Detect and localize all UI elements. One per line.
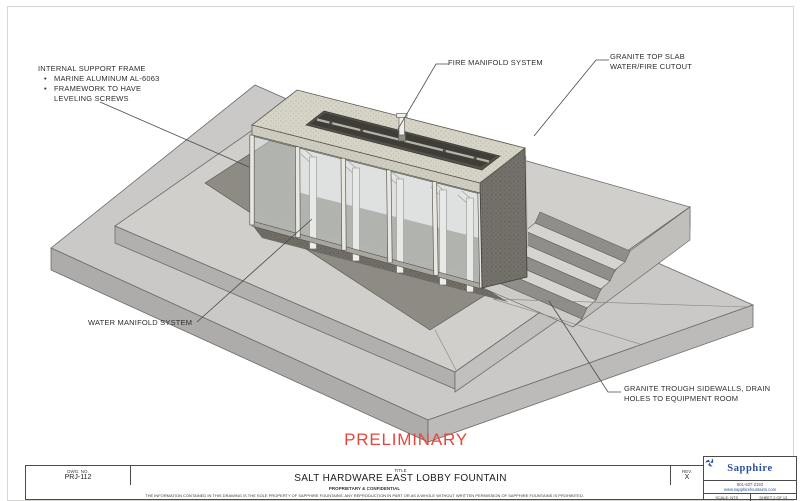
callout-internal-support-frame: INTERNAL SUPPORT FRAME • MARINE ALUMINUM… [38, 64, 216, 104]
drawing-sheet: INTERNAL SUPPORT FRAME • MARINE ALUMINUM… [0, 0, 800, 501]
legal-strip: THE INFORMATION CONTAINED IN THIS DRAWIN… [25, 492, 704, 500]
titleblock-title-cell: TITLE SALT HARDWARE EAST LOBBY FOUNTAIN [130, 465, 671, 486]
dwg-no-value: PRJ-112 [65, 474, 92, 482]
callout-granite-top-slab: GRANITE TOP SLAB WATER/FIRE CUTOUT [610, 52, 696, 72]
callout-bullet-text: FRAMEWORK TO HAVE LEVELING SCREWS [54, 84, 174, 104]
company-name: Sapphire [727, 464, 772, 473]
bullet-marker: • [38, 84, 54, 104]
callout-bullet-text: MARINE ALUMINUM AL-6063 [54, 74, 174, 84]
bullet-marker: • [38, 74, 54, 84]
sapphire-swirl-icon [704, 457, 716, 468]
preliminary-watermark: PRELIMINARY [6, 430, 800, 450]
callout-granite-trough: GRANITE TROUGH SIDEWALLS, DRAIN HOLES TO… [624, 384, 784, 404]
scale-cell: SCALE: NTS [704, 494, 750, 501]
leader-granite-top-slab [534, 60, 609, 136]
company-contact: 801-637-2193 www.sapphirefountains.com [704, 480, 796, 493]
callout-fire-manifold: FIRE MANIFOLD SYSTEM [448, 58, 543, 68]
company-block: Sapphire 801-637-2193 www.sapphirefounta… [703, 456, 797, 500]
sheet-number-cell: SHEET 2 OF 13 [750, 494, 797, 501]
callout-water-manifold: WATER MANIFOLD SYSTEM [88, 318, 192, 328]
callout-title: INTERNAL SUPPORT FRAME [38, 64, 216, 74]
titleblock-dwg-cell: DWG. NO. PRJ-112 [25, 465, 131, 486]
company-logo: Sapphire [704, 457, 796, 480]
company-website: www.sapphirefountains.com [704, 487, 796, 492]
drawing-title: SALT HARDWARE EAST LOBBY FOUNTAIN [294, 473, 507, 484]
rev-value: X [685, 474, 690, 482]
titleblock-rev-cell: REV. X [670, 465, 704, 486]
